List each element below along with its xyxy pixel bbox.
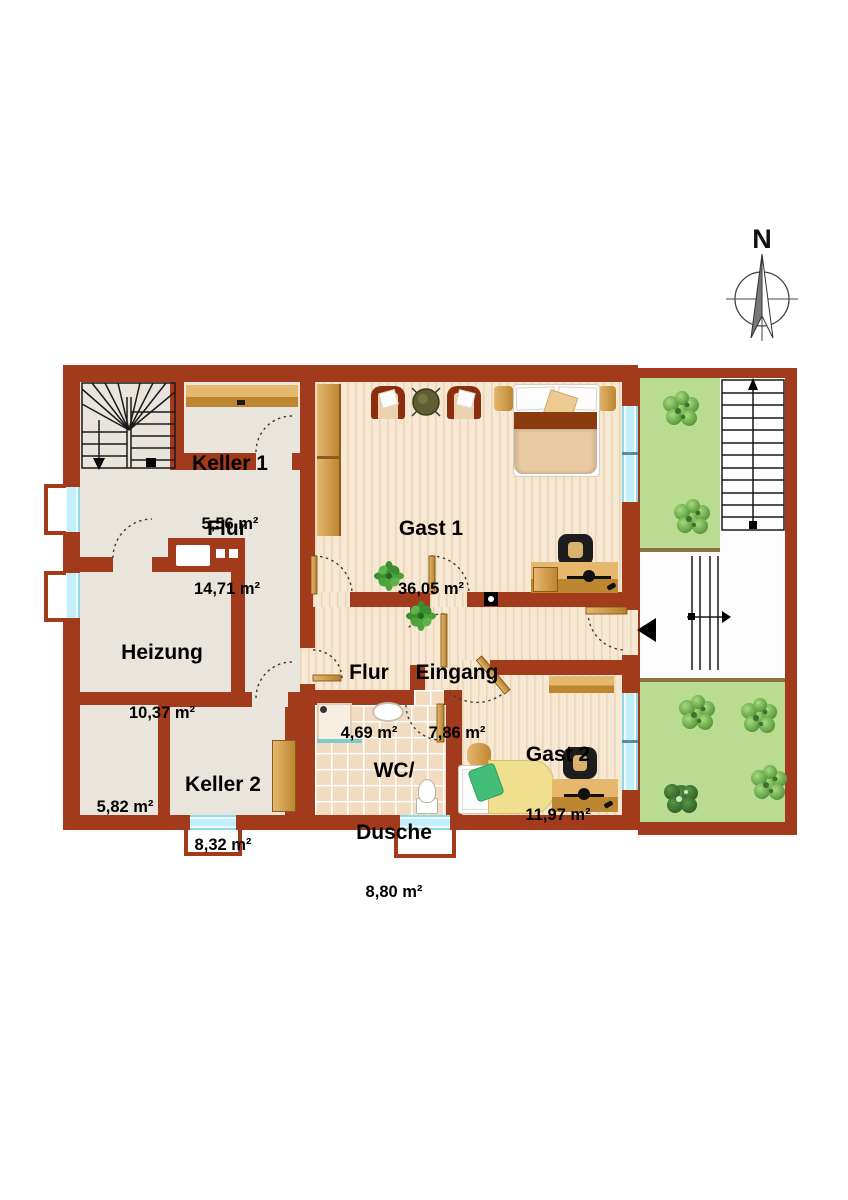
room-label-flur-main: Flur 14,71 m²: [194, 480, 260, 636]
room-label-wc-dusche: WC/ Dusche 8,80 m²: [356, 722, 432, 939]
floor-plan-page: N Keller 1 5,56 m² Flur 14,71 m² Heizung…: [0, 0, 848, 1200]
entrance-arrow-icon: [637, 618, 656, 642]
interior-staircase: [82, 383, 175, 470]
compass-icon: N: [726, 224, 798, 341]
landing-steps: [687, 556, 731, 670]
room-label-gast1: Gast 1 36,05 m²: [398, 480, 464, 636]
room-label-raum582: 5,82 m²: [97, 760, 154, 854]
shelf-handle: [237, 400, 245, 405]
compass-north-label: N: [752, 224, 772, 254]
room-label-gast2: Gast 2 11,97 m²: [525, 706, 590, 862]
room-label-keller2: Keller 2 8,32 m²: [185, 736, 261, 892]
gast1-round-table: [412, 388, 440, 416]
exterior-staircase: [722, 378, 784, 530]
